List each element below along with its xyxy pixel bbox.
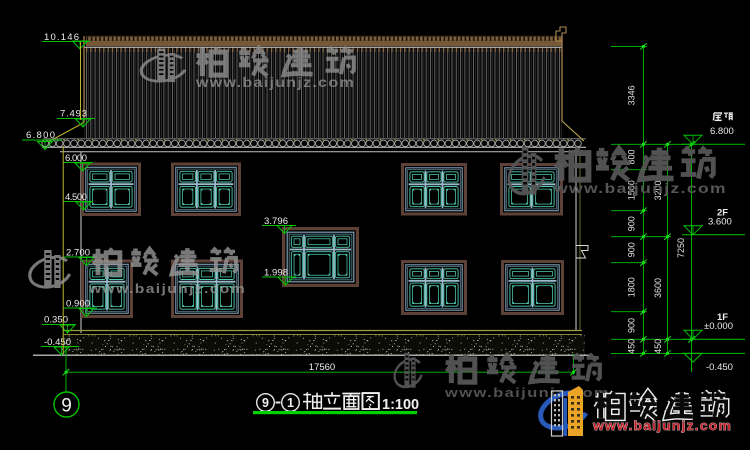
svg-text:450: 450 xyxy=(627,339,637,354)
svg-text:0.350: 0.350 xyxy=(44,315,68,326)
svg-text:9: 9 xyxy=(262,396,269,410)
svg-text:1:100: 1:100 xyxy=(382,397,419,413)
svg-text:www.baijunjz.com: www.baijunjz.com xyxy=(88,282,246,296)
svg-text:-0.450: -0.450 xyxy=(706,362,733,373)
svg-text:www.baijunjz.com: www.baijunjz.com xyxy=(195,75,355,90)
svg-text:www.baijunjz.com: www.baijunjz.com xyxy=(553,180,727,196)
svg-text:1800: 1800 xyxy=(627,277,637,297)
svg-text:±0.000: ±0.000 xyxy=(704,321,733,332)
svg-text:900: 900 xyxy=(627,318,637,333)
svg-text:900: 900 xyxy=(627,242,637,257)
svg-text:www.baijunjz.com: www.baijunjz.com xyxy=(444,386,610,400)
svg-text:6.800: 6.800 xyxy=(26,130,55,141)
svg-text:3600: 3600 xyxy=(653,278,663,298)
svg-text:450: 450 xyxy=(653,339,663,354)
svg-text:7.493: 7.493 xyxy=(60,109,87,120)
svg-text:www.baijunjz.com: www.baijunjz.com xyxy=(592,419,732,433)
svg-text:3346: 3346 xyxy=(627,85,637,105)
svg-text:17560: 17560 xyxy=(309,362,335,373)
svg-text:6.800: 6.800 xyxy=(710,126,734,137)
svg-text:7250: 7250 xyxy=(676,238,686,258)
svg-text:3.600: 3.600 xyxy=(708,216,732,227)
svg-text:9: 9 xyxy=(61,396,72,417)
svg-text:900: 900 xyxy=(627,216,637,231)
svg-text:1: 1 xyxy=(287,396,294,410)
